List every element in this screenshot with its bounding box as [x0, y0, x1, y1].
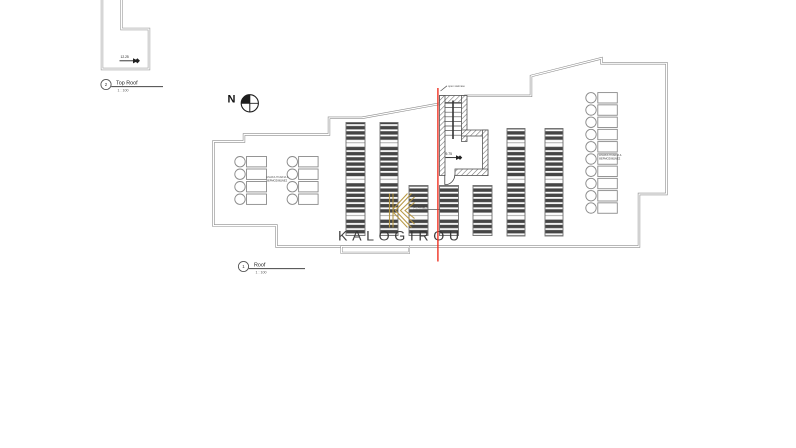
water-heater-cylinder — [586, 142, 596, 152]
water-heater-cylinder — [287, 157, 297, 167]
solar-collector-panel — [598, 93, 618, 103]
water-heater-cylinder — [235, 169, 245, 179]
water-heater-cylinder — [287, 169, 297, 179]
view-title-top-roof: 2 Top Roof 1 : 100 — [101, 79, 163, 92]
solar-panel-strip — [346, 123, 365, 236]
water-heater-cylinder — [586, 203, 596, 213]
right-units-label: ΗΛΙΑΚΑ ΠΛΑΙΣΙΑ & ΘΕΡΜΟΣΙΦΩΝΕΣ — [599, 153, 622, 160]
spot-elevation-value: 9.75 — [446, 152, 453, 156]
solar-collector-panel — [299, 157, 319, 167]
view-number: 2 — [105, 82, 108, 87]
view-title-text: Roof — [254, 263, 266, 269]
left-units-label-line1: ΗΛΙΑΚΑ ΠΛΑΙΣΙΑ & — [266, 175, 289, 179]
solar-collector-panel — [247, 157, 267, 167]
solar-collector-panel — [598, 191, 618, 201]
water-heater-cylinder — [586, 191, 596, 201]
solar-collector-panel — [299, 169, 319, 179]
solar-collector-panel — [598, 178, 618, 188]
solar-collector-panel — [247, 182, 267, 192]
solar-collector-panel — [598, 105, 618, 115]
solar-collector-panel — [299, 194, 319, 204]
view-title-roof: 1 Roof 1 : 100 — [238, 261, 305, 274]
water-heater-cylinder — [235, 157, 245, 167]
view-scale-text: 1 : 100 — [118, 88, 129, 92]
water-heater-cylinder — [586, 105, 596, 115]
spot-elevation-value: 12.25 — [121, 55, 129, 59]
water-heater-cylinder — [586, 154, 596, 164]
water-heater-cylinder — [586, 93, 596, 103]
solar-collector-panel — [598, 166, 618, 176]
left-units-label-line2: ΘΕΡΜΟΣΙΦΩΝΕΣ — [266, 178, 288, 182]
solar-collector-panel — [247, 169, 267, 179]
bottom-ledge — [342, 247, 410, 253]
solar-panel-strip — [507, 129, 525, 237]
view-scale-text: 1 : 100 — [256, 270, 267, 274]
right-units-label-line2: ΘΕΡΜΟΣΙΦΩΝΕΣ — [599, 156, 621, 160]
watermark-text: KALOGIROU — [338, 229, 464, 245]
north-arrow: N — [228, 94, 259, 112]
stair-leader: open staircase — [441, 84, 466, 91]
water-heater-cylinder — [586, 166, 596, 176]
compass-quadrant-icon — [241, 95, 250, 104]
water-heater-cylinder — [235, 194, 245, 204]
water-heater-cylinder — [586, 117, 596, 127]
water-heater-cylinder — [235, 182, 245, 192]
pv-leader-label: PV PANELS — [414, 205, 428, 209]
north-label: N — [228, 94, 236, 106]
stair-leader-line — [441, 86, 448, 91]
view-title-text: Top Roof — [116, 81, 138, 87]
solar-collector-panel — [247, 194, 267, 204]
solar-collector-panel — [598, 129, 618, 139]
left-units-label: ΗΛΙΑΚΑ ΠΛΑΙΣΙΑ & ΘΕΡΜΟΣΙΦΩΝΕΣ — [266, 175, 289, 182]
solar-collector-panel — [299, 182, 319, 192]
view-number: 1 — [242, 264, 245, 269]
solar-collector-panel — [598, 203, 618, 213]
architectural-drawing: 12.25 2 Top Roof 1 : 100 N ΗΛΙΑΚΑ ΠΛΑΙΣΙ… — [0, 0, 796, 448]
solar-collector-panel — [598, 142, 618, 152]
solar-collector-panel — [598, 117, 618, 127]
roof-plan-canvas: 12.25 2 Top Roof 1 : 100 N ΗΛΙΑΚΑ ΠΛΑΙΣΙ… — [0, 0, 796, 448]
stair-leader-label: open staircase — [448, 84, 465, 88]
solar-panel-strip — [473, 186, 492, 236]
water-heater-cylinder — [586, 178, 596, 188]
right-units-label-line1: ΗΛΙΑΚΑ ΠΛΑΙΣΙΑ & — [599, 153, 622, 157]
water-heater-cylinder — [287, 182, 297, 192]
solar-panel-strip — [545, 129, 563, 237]
water-heater-cylinder — [586, 129, 596, 139]
water-heater-cylinder — [287, 194, 297, 204]
